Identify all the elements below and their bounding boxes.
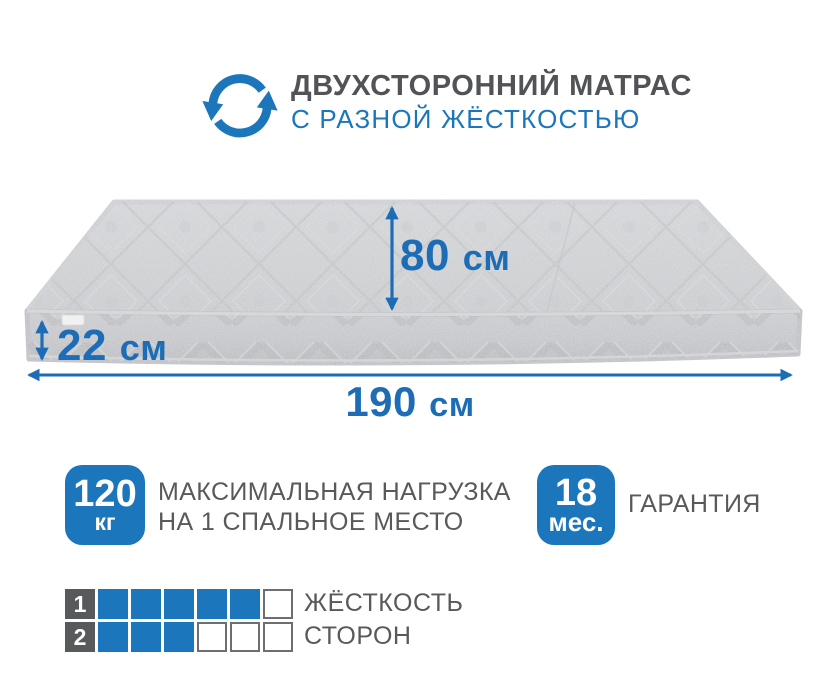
max-load-value: 120	[73, 477, 136, 511]
page-subtitle: С РАЗНОЙ ЖЁСТКОСТЬЮ	[291, 105, 692, 133]
firmness-row: 1	[65, 589, 293, 619]
warranty-badge: 18 мес.	[537, 465, 615, 545]
firmness-scale-label: ЖЁСТКОСТЬ СТОРОН	[304, 587, 463, 653]
firmness-label-line2: СТОРОН	[304, 620, 463, 653]
firmness-cell	[263, 622, 293, 652]
max-load-badge: 120 кг	[65, 465, 145, 545]
length-dimension-label: 190 см	[210, 381, 610, 423]
mattress-infographic: ДВУХСТОРОННИЙ МАТРАС С РАЗНОЙ ЖЁСТКОСТЬЮ	[0, 0, 816, 700]
max-load-label-line2: НА 1 СПАЛЬНОЕ МЕСТО	[158, 507, 511, 537]
firmness-cell	[131, 589, 161, 619]
height-value: 22	[57, 321, 107, 370]
max-load-label: МАКСИМАЛЬНАЯ НАГРУЗКА НА 1 СПАЛЬНОЕ МЕСТ…	[158, 477, 511, 537]
width-value: 80	[400, 231, 450, 280]
max-load-label-line1: МАКСИМАЛЬНАЯ НАГРУЗКА	[158, 477, 511, 507]
width-dimension-label: 80 см	[400, 234, 510, 278]
firmness-cell	[131, 622, 161, 652]
firmness-scale: 12	[65, 589, 293, 655]
firmness-cell	[98, 589, 128, 619]
header: ДВУХСТОРОННИЙ МАТРАС С РАЗНОЙ ЖЁСТКОСТЬЮ	[291, 71, 692, 133]
firmness-cell	[164, 589, 194, 619]
firmness-row: 2	[65, 622, 293, 652]
firmness-cell	[98, 622, 128, 652]
warranty-label: ГАРАНТИЯ	[628, 489, 761, 519]
warranty-unit: мес.	[548, 510, 603, 534]
firmness-cell	[197, 589, 227, 619]
firmness-cell	[230, 622, 260, 652]
height-dimension-label: 22 см	[57, 324, 167, 368]
firmness-cell	[230, 589, 260, 619]
warranty-value: 18	[555, 476, 597, 510]
firmness-side-number: 2	[65, 622, 95, 652]
firmness-side-number: 1	[65, 589, 95, 619]
max-load-unit: кг	[94, 511, 115, 533]
length-value: 190	[345, 378, 417, 425]
length-unit: см	[429, 386, 475, 424]
firmness-cell	[263, 589, 293, 619]
firmness-label-line1: ЖЁСТКОСТЬ	[304, 587, 463, 620]
page-title: ДВУХСТОРОННИЙ МАТРАС	[291, 71, 692, 102]
height-unit: см	[120, 327, 168, 368]
width-unit: см	[463, 237, 511, 278]
firmness-cell	[197, 622, 227, 652]
firmness-cell	[164, 622, 194, 652]
rotate-arrows-icon	[200, 64, 280, 146]
